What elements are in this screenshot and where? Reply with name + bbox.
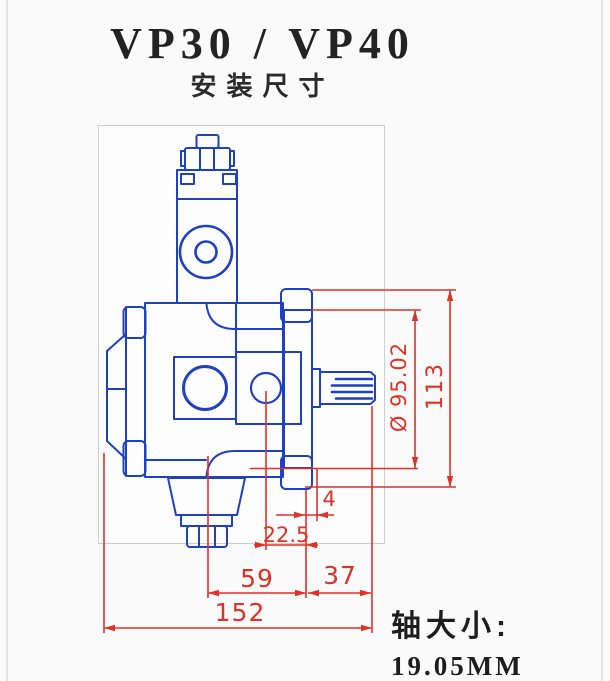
shaft-size-label: 轴大小: [391,601,524,645]
dim-label-flange-thickness: 4 [322,487,335,511]
pump-dimension-drawing: Ø 95.02 113 4 22.5 59 37 152 [0,0,610,681]
page: VP30 / VP40 安装尺寸 [0,0,610,681]
dim-label-center-to-face: 59 [240,564,274,593]
dim-label-spigot-diameter: Ø 95.02 [387,342,411,432]
dim-label-port-offset: 22.5 [263,523,310,547]
drawing-frame [99,126,385,544]
dim-label-overall-length: 152 [215,598,266,627]
shaft-size-note: 轴大小: 19.05MM [391,601,524,681]
dim-label-flange-height: 113 [423,362,448,410]
shaft-size-value: 19.05MM [391,651,524,681]
dim-label-face-to-shaft-end: 37 [323,561,357,590]
